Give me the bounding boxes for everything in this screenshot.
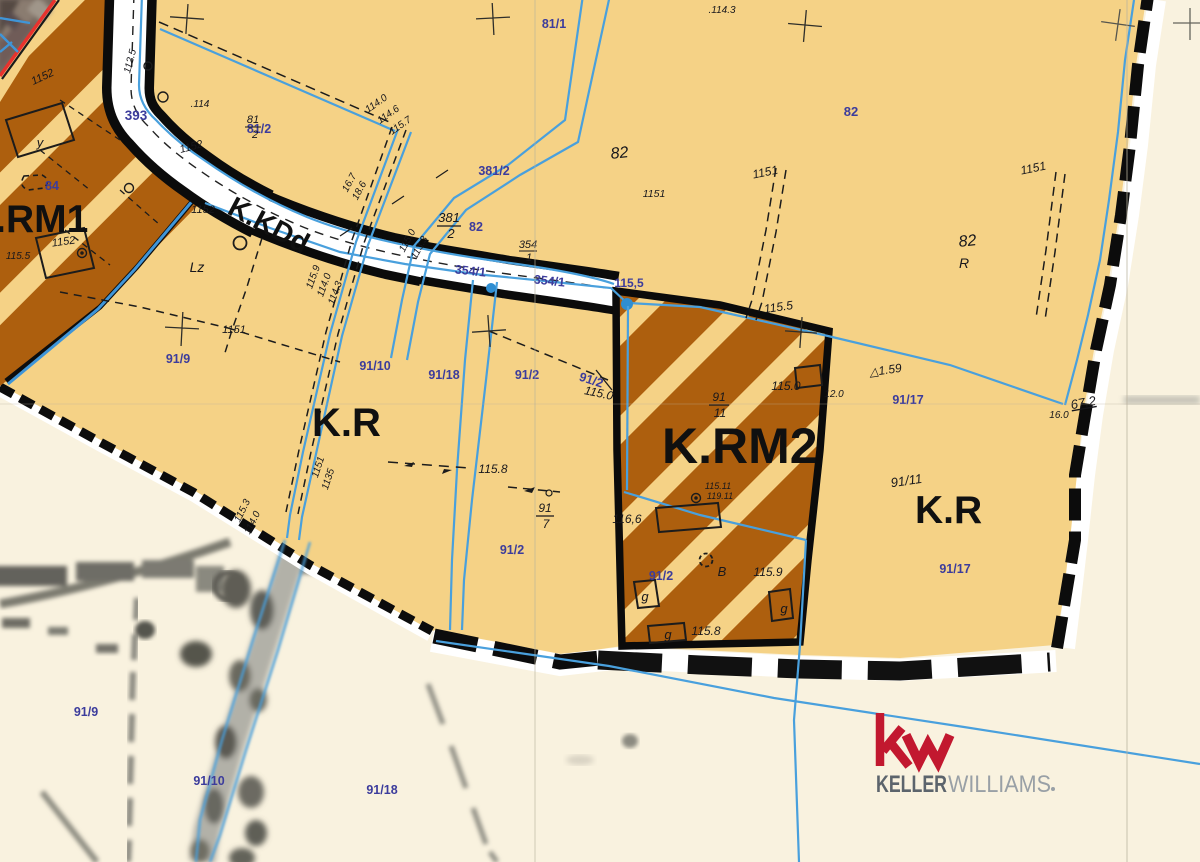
- svg-text:82: 82: [958, 232, 978, 251]
- svg-text:1151: 1151: [222, 324, 246, 336]
- svg-text:91: 91: [712, 390, 725, 404]
- svg-text:119.11: 119.11: [707, 491, 733, 501]
- svg-text:115.0: 115.0: [771, 379, 800, 393]
- svg-text:1152: 1152: [191, 204, 215, 216]
- svg-text:R: R: [959, 255, 969, 271]
- svg-text:K.RM2: K.RM2: [662, 418, 818, 474]
- svg-text:81: 81: [247, 114, 259, 126]
- svg-text:91/17: 91/17: [892, 393, 923, 407]
- svg-text:B: B: [718, 564, 727, 579]
- svg-text:91: 91: [538, 501, 551, 515]
- svg-text:K.R: K.R: [312, 401, 381, 445]
- svg-text:381: 381: [438, 210, 460, 225]
- svg-text:81/1: 81/1: [542, 17, 566, 31]
- svg-text:g: g: [641, 589, 649, 604]
- svg-text:KELLER: KELLER: [876, 771, 947, 798]
- svg-text:115.5: 115.5: [6, 251, 31, 262]
- svg-text:K.RM1: K.RM1: [0, 198, 88, 241]
- svg-text:91/10: 91/10: [359, 359, 390, 373]
- svg-text:82: 82: [469, 220, 483, 234]
- svg-text:91/17: 91/17: [939, 562, 970, 576]
- svg-text:91/2: 91/2: [500, 543, 524, 557]
- svg-text:2: 2: [251, 129, 258, 141]
- svg-text:16.0: 16.0: [1049, 410, 1069, 421]
- svg-text:K.R: K.R: [915, 489, 982, 532]
- svg-text:393: 393: [125, 108, 148, 123]
- svg-text:12.0: 12.0: [824, 389, 844, 400]
- svg-text:WILLIAMS: WILLIAMS: [948, 771, 1051, 798]
- svg-text:115.9: 115.9: [753, 565, 782, 579]
- svg-text:115,5: 115,5: [614, 276, 644, 290]
- svg-text:.114.3: .114.3: [708, 5, 735, 16]
- svg-text:.114: .114: [191, 99, 210, 110]
- svg-text:115.11: 115.11: [705, 481, 731, 491]
- svg-text:Lz: Lz: [190, 259, 205, 275]
- svg-text:82: 82: [610, 144, 630, 163]
- svg-text:116,6: 116,6: [612, 512, 641, 526]
- svg-text:1151: 1151: [643, 188, 666, 200]
- svg-text:82: 82: [844, 104, 858, 119]
- svg-text:115.8: 115.8: [691, 624, 720, 638]
- svg-text:91/9: 91/9: [166, 352, 190, 366]
- svg-text:91/9: 91/9: [74, 705, 98, 719]
- svg-text:g: g: [780, 601, 788, 616]
- svg-text:84: 84: [45, 179, 59, 193]
- svg-text:g: g: [664, 627, 672, 642]
- svg-text:381/2: 381/2: [478, 164, 509, 178]
- svg-text:91/10: 91/10: [193, 774, 224, 788]
- svg-text:2: 2: [446, 226, 455, 241]
- svg-text:115.8: 115.8: [478, 462, 507, 476]
- svg-text:91/18: 91/18: [428, 368, 459, 382]
- svg-text:1: 1: [526, 252, 532, 264]
- svg-text:91/18: 91/18: [366, 783, 397, 797]
- svg-text:91/2: 91/2: [649, 569, 673, 583]
